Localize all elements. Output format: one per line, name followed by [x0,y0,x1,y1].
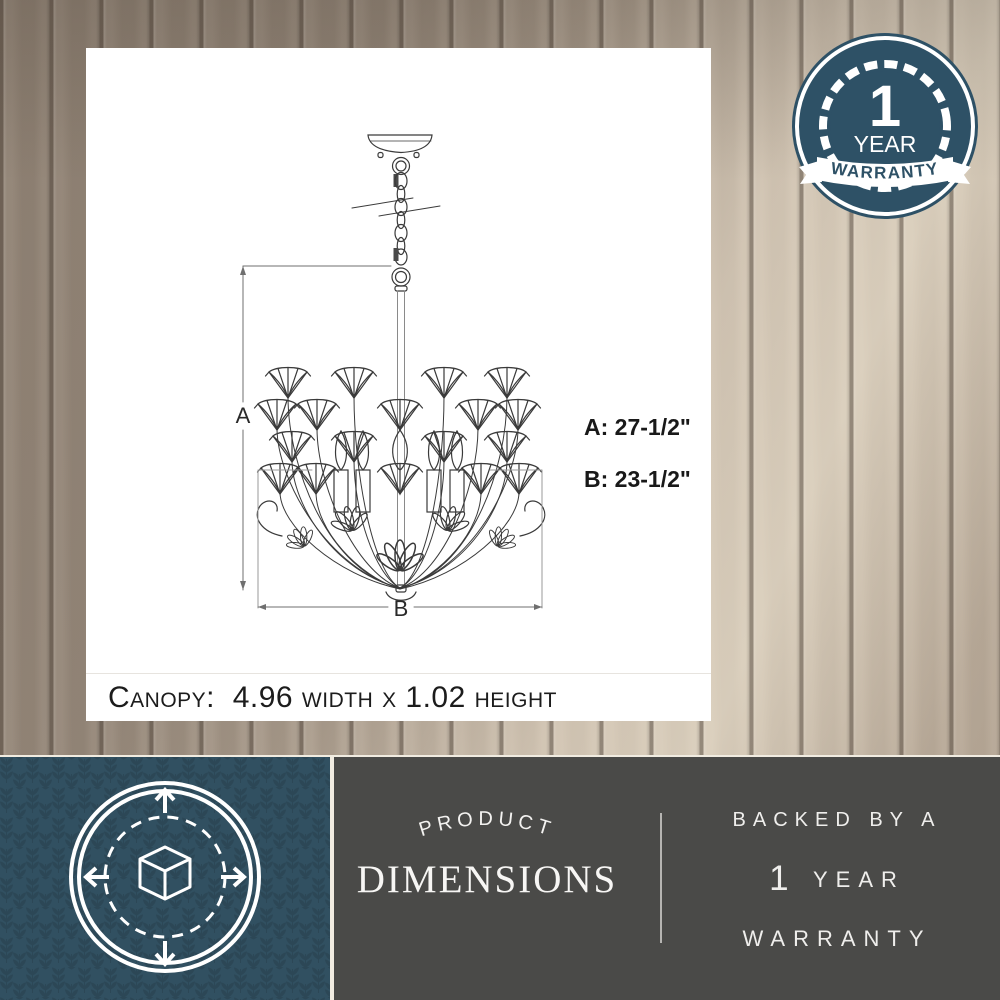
warranty-text-block: BACKED BY A 1 YEAR WARRANTY [680,809,994,952]
ceiling-canopy [368,135,432,158]
dimension-b-value: B: 23-1/2" [584,466,691,493]
dim-letter-b: B [394,596,409,621]
canopy-spec-strip: Canopy: 4.96 width x 1.02 height [86,673,711,721]
warranty-word: WARRANTY [680,926,994,952]
product-arc-text: PRODUCT [337,785,637,865]
year-word: YEAR [813,867,905,892]
canopy-spec-text: Canopy: 4.96 width x 1.02 height [108,681,557,715]
one-year-line: 1 YEAR [680,859,994,899]
vertical-divider [660,813,662,943]
bottom-ornaments [257,501,545,600]
dimension-diagram-card: A B A: 27-1/2" B: 23-1/2" Canopy: 4.96 w… [86,48,711,721]
dimension-icon [71,783,259,971]
chandelier-line-drawing: A B [86,48,711,673]
dimension-a-value: A: 27-1/2" [584,414,691,441]
warranty-badge: 1 YEAR WARRANTY [789,30,981,222]
svg-text:PRODUCT: PRODUCT [416,808,557,841]
hanging-chain [352,158,440,287]
dimension-icon-tile [0,757,330,1000]
dim-letter-a: A [236,403,251,428]
badge-year-label: YEAR [854,131,917,157]
badge-number: 1 [869,74,901,139]
dimensions-panel: PRODUCT DIMENSIONS BACKED BY A 1 YEAR WA… [334,757,1000,1000]
product-dimensions-graphic: A B A: 27-1/2" B: 23-1/2" Canopy: 4.96 w… [0,0,1000,1000]
footer-band: PRODUCT DIMENSIONS BACKED BY A 1 YEAR WA… [0,755,1000,1000]
dimensions-title: DIMENSIONS [337,857,637,902]
backed-by-line: BACKED BY A [680,809,994,832]
year-number: 1 [769,859,794,898]
